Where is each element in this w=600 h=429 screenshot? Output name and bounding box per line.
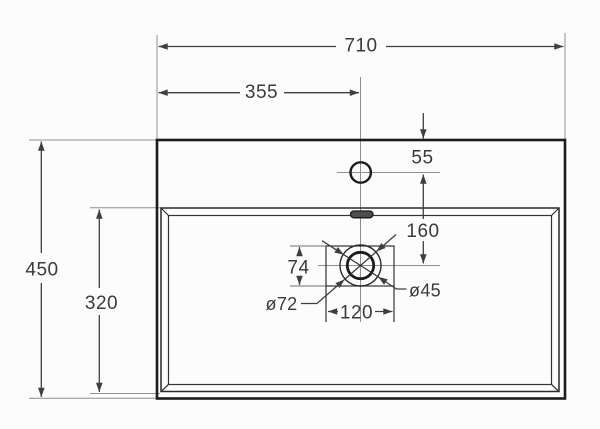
dim-120-label: 120 (340, 303, 373, 324)
label-dia-45: ø45 (409, 281, 441, 301)
dim-drain-box-depth: 74 (287, 247, 309, 285)
dim-55-label: 55 (411, 148, 433, 169)
dim-faucet-chain: 55 160 (406, 113, 439, 264)
drawing-canvas: 710 355 450 320 55 160 74 120 (0, 0, 600, 429)
dim-74-label: 74 (287, 258, 309, 279)
dim-450-label: 450 (25, 260, 58, 281)
label-dia-72: ø72 (266, 294, 298, 314)
overflow-slot (351, 211, 374, 218)
dim-overall-width: 710 (159, 36, 564, 57)
washbasin-technical-drawing: 710 355 450 320 55 160 74 120 (0, 0, 600, 429)
dim-320-label: 320 (85, 293, 118, 314)
dim-160-label: 160 (406, 221, 439, 242)
dim-drain-box-width: 120 (328, 303, 393, 324)
dim-overall-depth: 450 (25, 142, 58, 398)
dim-center-offset: 355 (159, 82, 360, 103)
dim-355-label: 355 (245, 82, 278, 103)
dim-basin-depth: 320 (85, 210, 118, 393)
dim-710-label: 710 (344, 36, 377, 57)
